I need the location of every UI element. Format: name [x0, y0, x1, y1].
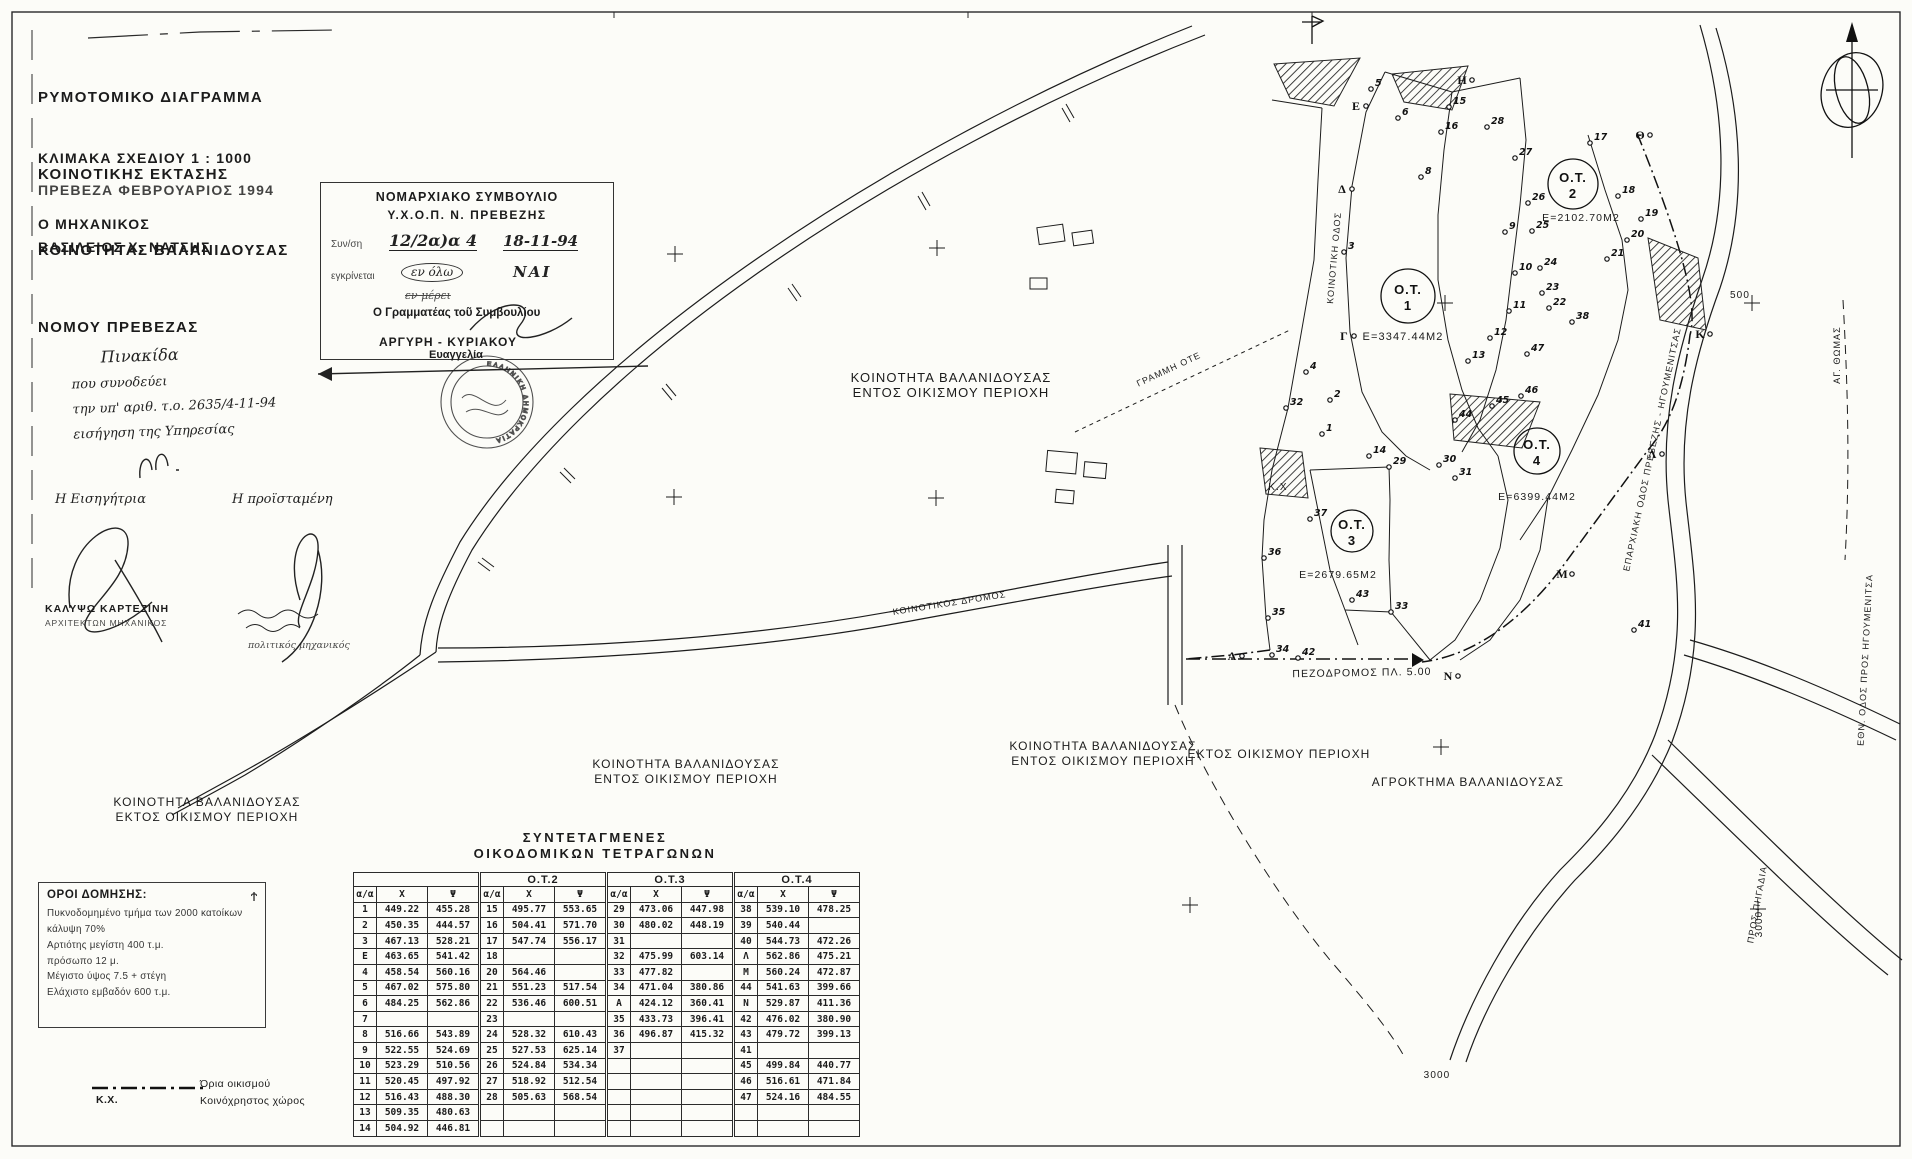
- building-terms-box: Ϯ ΟΡΟΙ ΔΟΜΗΣΗΣ: Πυκνοδομημένο τμήμα των …: [38, 882, 266, 1028]
- point-number-cell: 38: [734, 902, 758, 918]
- boundary-point-number: 33: [1395, 601, 1409, 612]
- title-line: ΡΥΜΟΤΟΜΙΚΟ ΔΙΑΓΡΑΜΜΑ: [38, 85, 289, 111]
- coords-table-container: Ο.Τ.2Ο.Τ.3Ο.Τ.4α/αΧΨα/αΧΨα/αΧΨα/αΧΨ1449.…: [353, 872, 860, 1137]
- coordinate-cell: [377, 1011, 428, 1027]
- coordinate-cell: 476.02: [758, 1011, 809, 1027]
- boundary-point-marker: [1437, 463, 1441, 467]
- point-number-cell: 6: [354, 996, 377, 1012]
- boundary-letter: Η: [1457, 73, 1467, 87]
- point-number-cell: [607, 1120, 631, 1136]
- boundary-point-number: 45: [1495, 395, 1510, 406]
- coordinate-cell: 509.35: [377, 1105, 428, 1121]
- boundary-letter-marker: [1648, 133, 1652, 137]
- coordinate-cell: [682, 1042, 734, 1058]
- boundary-point-number: 8: [1425, 166, 1432, 177]
- map-label: ΚΟΙΝΟΤΙΚΟΣ ΔΡΟΜΟΣ: [892, 589, 1007, 617]
- coordinate-cell: [809, 1042, 860, 1058]
- coordinate-cell: 523.29: [377, 1058, 428, 1074]
- boundary-point-marker: [1632, 628, 1636, 632]
- coordinate-cell: 544.73: [758, 933, 809, 949]
- coordinate-cell: 510.56: [428, 1058, 480, 1074]
- boundary-point-marker: [1485, 125, 1489, 129]
- boundary-point-marker: [1419, 175, 1423, 179]
- coordinate-cell: [631, 1120, 682, 1136]
- table-row: 72335433.73396.4142476.02380.90: [354, 1011, 860, 1027]
- approve-label: εγκρίνεται: [331, 271, 375, 282]
- boundary-point-marker: [1389, 610, 1393, 614]
- coordinate-cell: 497.92: [428, 1074, 480, 1090]
- point-number-cell: 37: [607, 1042, 631, 1058]
- coordinate-cell: 524.69: [428, 1042, 480, 1058]
- point-number-cell: 16: [480, 918, 504, 934]
- coordinate-cell: [682, 1105, 734, 1121]
- table-col-header: Χ: [758, 887, 809, 903]
- coordinate-cell: [504, 1011, 555, 1027]
- terms-line: πρόσωπο 12 μ.: [47, 954, 257, 970]
- coordinate-cell: 472.87: [809, 964, 860, 980]
- map-label: 500: [1730, 290, 1750, 301]
- point-number-cell: [480, 1105, 504, 1121]
- north-compass-icon: [1812, 22, 1893, 158]
- boundary-point-marker: [1503, 230, 1507, 234]
- coordinate-cell: 505.63: [504, 1089, 555, 1105]
- boundary-point-marker: [1284, 406, 1288, 410]
- coordinate-cell: 516.61: [758, 1074, 809, 1090]
- boundary-point-number: 10: [1519, 262, 1533, 273]
- map-label: Ε=3347.44Μ2: [1363, 331, 1444, 343]
- point-number-cell: 23: [480, 1011, 504, 1027]
- boundary-point-marker: [1308, 517, 1312, 521]
- point-number-cell: 46: [734, 1074, 758, 1090]
- secretary-name: ΑΡΓΥΡΗ - ΚΥΡΙΑΚΟΥ: [379, 335, 517, 349]
- boundary-point-marker: [1507, 309, 1511, 313]
- table-row: 3467.13528.2117547.74556.173140544.73472…: [354, 933, 860, 949]
- signer-title-stamp: ΑΡΧΙΤΕΚΤΩΝ ΜΗΧΑΝΙΚΟΣ: [45, 618, 167, 628]
- boundary-point-number: 17: [1594, 132, 1608, 143]
- boundary-point-marker: [1304, 370, 1308, 374]
- signer-title-right: πολιτικός μηχανικός: [248, 640, 350, 651]
- boundary-letter: Θ: [1635, 128, 1644, 142]
- block-circle-number: 3: [1348, 533, 1356, 548]
- boundary-letter-marker: [1708, 332, 1712, 336]
- approval-stamp: ΝΟΜΑΡΧΙΑΚΟ ΣΥΜΒΟΥΛΙΟ Υ.Χ.Ο.Π. Ν. ΠΡΕΒΕΖΗ…: [320, 182, 614, 360]
- boundary-point-number: 26: [1532, 192, 1546, 203]
- map-label: ΚΟΙΝΟΤΗΤΑ ΒΑΛΑΝΙΔΟΥΣΑΣΕΝΤΟΣ ΟΙΚΙΣΜΟΥ ΠΕΡ…: [1009, 739, 1196, 768]
- coordinate-cell: 516.66: [377, 1027, 428, 1043]
- session-value: 12/2α)α 4: [389, 231, 477, 251]
- stamp-org-line2: Υ.Χ.Ο.Π. Ν. ΠΡΕΒΕΖΗΣ: [321, 208, 613, 222]
- point-number-cell: 2: [354, 918, 377, 934]
- grid-cross-icon: [667, 246, 683, 262]
- table-group-header: Ο.Τ.3: [607, 873, 734, 887]
- boundary-letter-marker: [1660, 452, 1664, 456]
- coordinate-cell: 540.44: [758, 918, 809, 934]
- boundary-point-number: 44: [1458, 409, 1473, 420]
- point-number-cell: 12: [354, 1089, 377, 1105]
- coordinate-cell: [758, 1120, 809, 1136]
- point-number-cell: 14: [354, 1120, 377, 1136]
- boundary-point-number: 46: [1524, 385, 1539, 396]
- coordinate-cell: 499.84: [758, 1058, 809, 1074]
- boundary-point-marker: [1262, 556, 1266, 560]
- coordinate-cell: [758, 1105, 809, 1121]
- terms-line: Μέγιστο ύψος 7.5 + στέγη: [47, 969, 257, 985]
- coordinate-cell: 484.25: [377, 996, 428, 1012]
- boundary-point-marker: [1387, 465, 1391, 469]
- boundary-point-number: 24: [1544, 257, 1558, 268]
- coordinate-cell: 562.86: [428, 996, 480, 1012]
- point-number-cell: 25: [480, 1042, 504, 1058]
- place-date: ΠΡΕΒΕΖΑ ΦΕΒΡΟΥΑΡΙΟΣ 1994: [38, 182, 274, 198]
- point-number-cell: 18: [480, 949, 504, 965]
- boundary-point-marker: [1616, 194, 1620, 198]
- coordinate-cell: 444.57: [428, 918, 480, 934]
- coordinate-cell: 512.54: [555, 1074, 607, 1090]
- boundary-point-marker: [1625, 238, 1629, 242]
- table-row: Ε463.65541.421832475.99603.14Λ562.86475.…: [354, 949, 860, 965]
- point-number-cell: 41: [734, 1042, 758, 1058]
- boundary-point-marker: [1488, 336, 1492, 340]
- boundary-point-marker: [1526, 201, 1530, 205]
- point-number-cell: [480, 1120, 504, 1136]
- table-col-header: α/α: [480, 887, 504, 903]
- coordinate-cell: 463.65: [377, 949, 428, 965]
- point-number-cell: 30: [607, 918, 631, 934]
- map-label: ΕΠΑΡΧΙΑΚΗ ΟΔΟΣ ΠΡΕΒΕΖΗΣ - ΗΓΟΥΜΕΝΙΤΣΑΣ: [1621, 327, 1683, 573]
- coordinate-cell: 447.98: [682, 902, 734, 918]
- terms-line: Πυκνοδομημένο τμήμα των 2000 κατοίκων: [47, 906, 257, 922]
- coordinate-cell: 528.21: [428, 933, 480, 949]
- coordinate-cell: 536.46: [504, 996, 555, 1012]
- boundary-point-marker: [1530, 229, 1534, 233]
- point-number-cell: 29: [607, 902, 631, 918]
- boundary-letter-marker: [1240, 654, 1244, 658]
- boundary-point-marker: [1350, 598, 1354, 602]
- boundary-point-number: 29: [1393, 456, 1407, 467]
- boundary-point-number: 15: [1453, 96, 1467, 107]
- table-row: 2450.35444.5716504.41571.7030480.02448.1…: [354, 918, 860, 934]
- coordinate-cell: 547.74: [504, 933, 555, 949]
- boundary-letter-marker: [1350, 187, 1354, 191]
- table-title-line1: ΣΥΝΤΕΤΑΓΜΕΝΕΣ: [352, 830, 838, 845]
- boundary-point-marker: [1266, 616, 1270, 620]
- boundary-point-marker: [1447, 105, 1451, 109]
- coordinate-cell: 446.81: [428, 1120, 480, 1136]
- coordinate-cell: 522.55: [377, 1042, 428, 1058]
- point-number-cell: Μ: [734, 964, 758, 980]
- point-number-cell: 3: [354, 933, 377, 949]
- map-label: ΚΟΙΝΟΤΗΤΑ ΒΑΛΑΝΙΔΟΥΣΑΣΕΚΤΟΣ ΟΙΚΙΣΜΟΥ ΠΕΡ…: [113, 795, 300, 824]
- point-number-cell: 36: [607, 1027, 631, 1043]
- table-col-header: α/α: [607, 887, 631, 903]
- coordinate-cell: 380.86: [682, 980, 734, 996]
- coordinate-cell: 524.16: [758, 1089, 809, 1105]
- boundary-point-number: 42: [1301, 647, 1316, 658]
- coordinate-cell: 568.54: [555, 1089, 607, 1105]
- boundary-point-number: 28: [1491, 116, 1505, 127]
- coordinate-cell: 475.21: [809, 949, 860, 965]
- block-circle-label: Ο.Τ.: [1559, 170, 1587, 185]
- coordinate-cell: 471.04: [631, 980, 682, 996]
- map-label: ΑΓ. ΘΩΜΑΣ: [1832, 326, 1842, 384]
- legend-kx-abbr: Κ.Χ.: [96, 1094, 118, 1106]
- table-row: 12516.43488.3028505.63568.5447524.16484.…: [354, 1089, 860, 1105]
- coordinate-cell: 560.16: [428, 964, 480, 980]
- boundary-letter: Ν: [1444, 669, 1453, 683]
- coordinate-cell: 455.28: [428, 902, 480, 918]
- point-number-cell: 8: [354, 1027, 377, 1043]
- coordinate-cell: [631, 1089, 682, 1105]
- coordinate-cell: 529.87: [758, 996, 809, 1012]
- coordinate-cell: 518.92: [504, 1074, 555, 1090]
- boundary-point-number: 19: [1645, 208, 1659, 219]
- coordinate-cell: 433.73: [631, 1011, 682, 1027]
- block-circle-number: 4: [1533, 453, 1541, 468]
- table-row: 9522.55524.6925527.53625.143741: [354, 1042, 860, 1058]
- boundary-letter: Α: [1228, 649, 1237, 663]
- coordinate-cell: 440.77: [809, 1058, 860, 1074]
- coordinate-cell: 478.25: [809, 902, 860, 918]
- boundary-letter-marker: [1352, 334, 1356, 338]
- grid-cross-icon: [929, 240, 945, 256]
- coordinate-cell: [682, 933, 734, 949]
- boundary-point-number: 9: [1509, 221, 1516, 232]
- coordinate-cell: 449.22: [377, 902, 428, 918]
- boundary-point-number: 5: [1375, 78, 1382, 89]
- boundary-point-marker: [1466, 359, 1470, 363]
- coordinate-cell: 475.99: [631, 949, 682, 965]
- boundary-point-marker: [1588, 141, 1592, 145]
- coordinate-cell: 516.43: [377, 1089, 428, 1105]
- boundary-point-marker: [1570, 320, 1574, 324]
- map-label: Ε=6399.44Μ2: [1498, 491, 1576, 503]
- table-row: 5467.02575.8021551.23517.5434471.04380.8…: [354, 980, 860, 996]
- coordinate-cell: 488.30: [428, 1089, 480, 1105]
- point-number-cell: 31: [607, 933, 631, 949]
- boundary-point-marker: [1519, 394, 1523, 398]
- boundary-point-number: 37: [1314, 508, 1328, 519]
- boundary-point-number: 12: [1494, 327, 1508, 338]
- point-number-cell: 34: [607, 980, 631, 996]
- coordinate-cell: 458.54: [377, 964, 428, 980]
- map-scale: ΚΛΙΜΑΚΑ ΣΧΕΔΙΟΥ 1 : 1000: [38, 150, 252, 166]
- boundary-point-number: 4: [1309, 361, 1317, 372]
- boundary-point-marker: [1328, 398, 1332, 402]
- coordinate-cell: 562.86: [758, 949, 809, 965]
- boundary-point-marker: [1547, 306, 1551, 310]
- scope-circled: εν όλω: [401, 263, 463, 282]
- point-number-cell: 15: [480, 902, 504, 918]
- coordinate-cell: [682, 1074, 734, 1090]
- boundary-point-number: 23: [1546, 282, 1560, 293]
- coordinate-cell: 560.24: [758, 964, 809, 980]
- map-label: ΓΡΑΜΜΗ ΟΤΕ: [1135, 350, 1202, 389]
- coordinate-cell: [504, 949, 555, 965]
- boundary-point-number: 16: [1445, 121, 1459, 132]
- point-number-cell: 13: [354, 1105, 377, 1121]
- role-right: Η προϊσταμένη: [232, 492, 333, 507]
- coordinate-cell: 473.06: [631, 902, 682, 918]
- map-label: Ε=2102.70Μ2: [1542, 212, 1620, 224]
- boundary-point-marker: [1367, 454, 1371, 458]
- table-col-header: Χ: [631, 887, 682, 903]
- point-number-cell: Λ: [734, 949, 758, 965]
- boundary-letter-marker: [1364, 104, 1368, 108]
- coordinate-cell: [555, 1011, 607, 1027]
- boundary-point-number: 32: [1290, 397, 1304, 408]
- engineer-name: ΒΑΣΙΛΕΙΟΣ Χ. ΝΑΤΣΗΣ: [38, 239, 211, 255]
- coordinate-cell: [631, 1074, 682, 1090]
- coordinate-cell: 541.42: [428, 949, 480, 965]
- coordinate-cell: 471.84: [809, 1074, 860, 1090]
- table-col-header: Ψ: [555, 887, 607, 903]
- coordinate-cell: 541.63: [758, 980, 809, 996]
- boundary-letter-marker: [1570, 572, 1574, 576]
- coordinate-cell: 472.26: [809, 933, 860, 949]
- coordinate-cell: 556.17: [555, 933, 607, 949]
- block-circle-label: Ο.Τ.: [1394, 282, 1422, 297]
- point-number-cell: 28: [480, 1089, 504, 1105]
- coordinate-cell: 603.14: [682, 949, 734, 965]
- boundary-point-marker: [1396, 116, 1400, 120]
- boundary-point-number: 11: [1513, 300, 1526, 311]
- point-number-cell: 32: [607, 949, 631, 965]
- boundary-point-number: 13: [1472, 350, 1486, 361]
- map-label: 3000: [1754, 911, 1765, 938]
- coordinate-cell: 527.53: [504, 1042, 555, 1058]
- coords-table-mount: Ο.Τ.2Ο.Τ.3Ο.Τ.4α/αΧΨα/αΧΨα/αΧΨα/αΧΨ1449.…: [353, 872, 860, 1137]
- coordinate-cell: 480.63: [428, 1105, 480, 1121]
- boundary-point-marker: [1296, 656, 1300, 660]
- coordinate-cell: [504, 1105, 555, 1121]
- terms-line: Ελάχιστο εμβαδόν 600 τ.μ.: [47, 985, 257, 1001]
- boundary-point-number: 30: [1443, 454, 1457, 465]
- coordinate-cell: 564.46: [504, 964, 555, 980]
- boundary-point-number: 38: [1576, 311, 1590, 322]
- table-group-header: Ο.Τ.4: [734, 873, 860, 887]
- coords-table: Ο.Τ.2Ο.Τ.3Ο.Τ.4α/αΧΨα/αΧΨα/αΧΨα/αΧΨ1449.…: [353, 872, 860, 1137]
- table-col-header: α/α: [734, 887, 758, 903]
- map-label: Ε=2679.65Μ2: [1299, 569, 1377, 581]
- point-number-cell: 26: [480, 1058, 504, 1074]
- point-number-cell: 39: [734, 918, 758, 934]
- boundary-point-number: 2: [1334, 389, 1341, 400]
- coordinate-cell: 600.51: [555, 996, 607, 1012]
- point-number-cell: 20: [480, 964, 504, 980]
- boundary-point-marker: [1369, 87, 1373, 91]
- point-number-cell: 1: [354, 902, 377, 918]
- coordinate-cell: 477.82: [631, 964, 682, 980]
- coordinate-cell: 450.35: [377, 918, 428, 934]
- coordinate-cell: 448.19: [682, 918, 734, 934]
- coordinate-cell: 484.55: [809, 1089, 860, 1105]
- block-circle-label: Ο.Τ.: [1523, 437, 1551, 452]
- point-number-cell: 45: [734, 1058, 758, 1074]
- boundary-point-marker: [1525, 352, 1529, 356]
- boundary-point-number: 21: [1611, 248, 1624, 259]
- coordinate-cell: [682, 1058, 734, 1074]
- coordinate-cell: 479.72: [758, 1027, 809, 1043]
- coordinate-cell: 415.32: [682, 1027, 734, 1043]
- boundary-letter: Μ: [1556, 567, 1567, 581]
- coordinate-cell: [809, 918, 860, 934]
- boundary-point-number: 36: [1268, 547, 1282, 558]
- point-number-cell: 5: [354, 980, 377, 996]
- boundary-point-marker: [1453, 418, 1457, 422]
- coordinate-cell: 360.41: [682, 996, 734, 1012]
- coordinate-cell: 380.90: [809, 1011, 860, 1027]
- boundary-letter-marker: [1456, 674, 1460, 678]
- map-label: ΚΟΙΝΟΤΙΚΗ ΟΔΟΣ: [1325, 211, 1343, 304]
- point-number-cell: Ν: [734, 996, 758, 1012]
- boundary-point-number: 18: [1622, 185, 1636, 196]
- terms-line: Αρτιότης μεγίστη 400 τ.μ.: [47, 938, 257, 954]
- boundary-point-marker: [1538, 266, 1542, 270]
- point-number-cell: 21: [480, 980, 504, 996]
- coordinate-cell: [555, 1120, 607, 1136]
- point-number-cell: 27: [480, 1074, 504, 1090]
- grid-cross-icon: [928, 490, 944, 506]
- decision-value: ΝΑΙ: [513, 263, 551, 281]
- block-circle-number: 1: [1404, 298, 1412, 313]
- secretary-label: Ο Γραμματέας τοῦ Συμβουλίου: [373, 307, 540, 319]
- block-circle-label: Ο.Τ.: [1338, 517, 1366, 532]
- table-row: 10523.29510.5626524.84534.3445499.84440.…: [354, 1058, 860, 1074]
- coordinate-cell: 528.32: [504, 1027, 555, 1043]
- coordinate-cell: [631, 1058, 682, 1074]
- coordinate-cell: [631, 1105, 682, 1121]
- map-label: ΑΓΡΟΚΤΗΜΑ ΒΑΛΑΝΙΔΟΥΣΑΣ: [1372, 775, 1564, 789]
- table-title-line2: ΟΙΚΟΔΟΜΙΚΩΝ ΤΕΤΡΑΓΩΝΩΝ: [352, 846, 838, 861]
- map-label: ΕΚΤΟΣ ΟΙΚΙΣΜΟΥ ΠΕΡΙΟΧΗ: [1188, 747, 1371, 761]
- coordinate-cell: 495.77: [504, 902, 555, 918]
- boundary-point-marker: [1513, 271, 1517, 275]
- session-date: 18-11-94: [503, 232, 578, 251]
- scope-struck: εν μέρει: [405, 289, 451, 302]
- coordinate-cell: [555, 964, 607, 980]
- point-number-cell: 42: [734, 1011, 758, 1027]
- point-number-cell: Α: [607, 996, 631, 1012]
- point-number-cell: 33: [607, 964, 631, 980]
- title-line: ΝΟΜΟΥ ΠΡΕΒΕΖΑΣ: [38, 315, 289, 341]
- coordinate-cell: 571.70: [555, 918, 607, 934]
- boundary-point-marker: [1439, 130, 1443, 134]
- map-label: ΚΟΙΝΟΤΗΤΑ ΒΑΛΑΝΙΔΟΥΣΑΣΕΝΤΟΣ ΟΙΚΙΣΜΟΥ ΠΕΡ…: [592, 757, 779, 786]
- boundary-point-number: 35: [1272, 607, 1286, 618]
- signer-name-stamp: ΚΑΛΥΨΩ ΚΑΡΤΕΖΙΝΗ: [45, 603, 169, 615]
- coordinate-cell: 480.02: [631, 918, 682, 934]
- grid-cross-icon: [1433, 739, 1449, 755]
- table-row: 8516.66543.8924528.32610.4336496.87415.3…: [354, 1027, 860, 1043]
- coordinate-cell: 575.80: [428, 980, 480, 996]
- table-col-header: Ψ: [428, 887, 480, 903]
- coordinate-cell: 424.12: [631, 996, 682, 1012]
- coordinate-cell: [682, 1120, 734, 1136]
- point-number-cell: [734, 1120, 758, 1136]
- coordinate-cell: [555, 1105, 607, 1121]
- point-number-cell: 10: [354, 1058, 377, 1074]
- boundary-point-number: 34: [1276, 644, 1290, 655]
- point-number-cell: [607, 1058, 631, 1074]
- terms-symbol-icon: Ϯ: [251, 889, 257, 904]
- coordinate-cell: [682, 964, 734, 980]
- boundary-point-marker: [1639, 217, 1643, 221]
- boundary-point-number: 14: [1373, 445, 1387, 456]
- table-col-header: α/α: [354, 887, 377, 903]
- point-number-cell: [607, 1105, 631, 1121]
- grid-cross-icon: [1437, 295, 1453, 311]
- table-col-header: Ψ: [682, 887, 734, 903]
